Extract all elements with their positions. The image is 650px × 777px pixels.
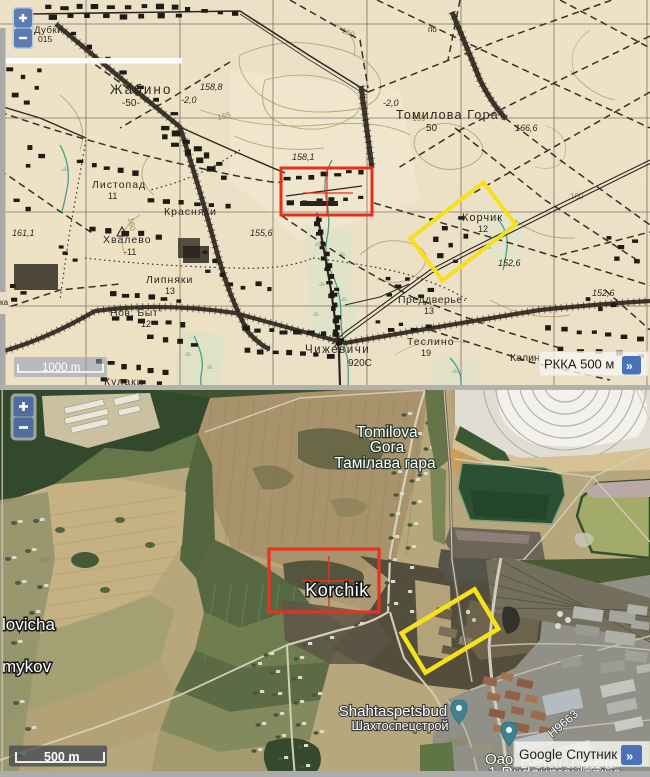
- svg-text:-2,0: -2,0: [383, 98, 399, 108]
- svg-text:Жабино: Жабино: [110, 82, 172, 97]
- svg-text:500 m: 500 m: [44, 750, 79, 764]
- svg-text:»: »: [626, 749, 633, 764]
- svg-text:-11: -11: [124, 247, 136, 257]
- svg-text:Теслино: Теслино: [407, 336, 455, 348]
- svg-text:015: 015: [38, 34, 52, 44]
- svg-text:Shahtaspetsbud: Shahtaspetsbud: [339, 703, 447, 720]
- svg-text:158,8: 158,8: [200, 82, 223, 92]
- svg-text:12: 12: [478, 224, 488, 234]
- svg-text:152,6: 152,6: [498, 258, 521, 268]
- svg-text:Преддверье·: Преддверье·: [398, 294, 467, 306]
- svg-text:Чижевичи: Чижевичи: [305, 344, 370, 356]
- svg-text:Нов. Быт°: Нов. Быт°: [110, 307, 163, 319]
- svg-text:Google Спутник: Google Спутник: [519, 747, 617, 762]
- svg-text:152,6: 152,6: [592, 288, 615, 298]
- svg-text:РККА 500 м: РККА 500 м: [544, 357, 614, 372]
- svg-text:lovicha: lovicha: [2, 615, 55, 634]
- svg-text:Листопад: Листопад: [92, 179, 146, 191]
- svg-text:-2,0: -2,0: [181, 95, 197, 105]
- svg-text:19: 19: [421, 348, 431, 358]
- svg-text:920С: 920С: [348, 358, 372, 369]
- svg-text:12: 12: [141, 319, 151, 329]
- svg-text:Тамілава гара: Тамілава гара: [334, 455, 436, 472]
- svg-text:158,1: 158,1: [292, 152, 315, 162]
- svg-text:ка: ка: [0, 298, 9, 307]
- svg-text:Калин: Калин: [510, 352, 540, 364]
- svg-text:161,1: 161,1: [12, 228, 35, 238]
- svg-text:13: 13: [165, 286, 175, 296]
- svg-text:Липняки: Липняки: [146, 274, 193, 286]
- svg-text:155,6: 155,6: [250, 228, 273, 238]
- svg-text:»: »: [626, 359, 633, 373]
- svg-text:1000 m: 1000 m: [42, 362, 80, 374]
- svg-text:-50-: -50-: [122, 98, 140, 109]
- svg-text:по: по: [428, 25, 437, 34]
- svg-text:11: 11: [108, 191, 117, 201]
- svg-text:50: 50: [426, 123, 438, 134]
- svg-text:Korchik: Korchik: [305, 580, 369, 600]
- svg-text:Красняки: Красняки: [164, 206, 217, 218]
- svg-text:Шахтоспецстрой: Шахтоспецстрой: [352, 719, 449, 733]
- svg-text:166,6: 166,6: [515, 123, 538, 133]
- svg-text:Хвалево: Хвалево: [103, 234, 152, 246]
- svg-text:Томилова Гора: Томилова Гора: [396, 108, 499, 122]
- svg-text:13: 13: [424, 306, 434, 316]
- svg-text:Gora: Gora: [370, 439, 405, 456]
- svg-text:mykov: mykov: [2, 657, 52, 676]
- svg-text:Корчик: Корчик: [462, 212, 503, 224]
